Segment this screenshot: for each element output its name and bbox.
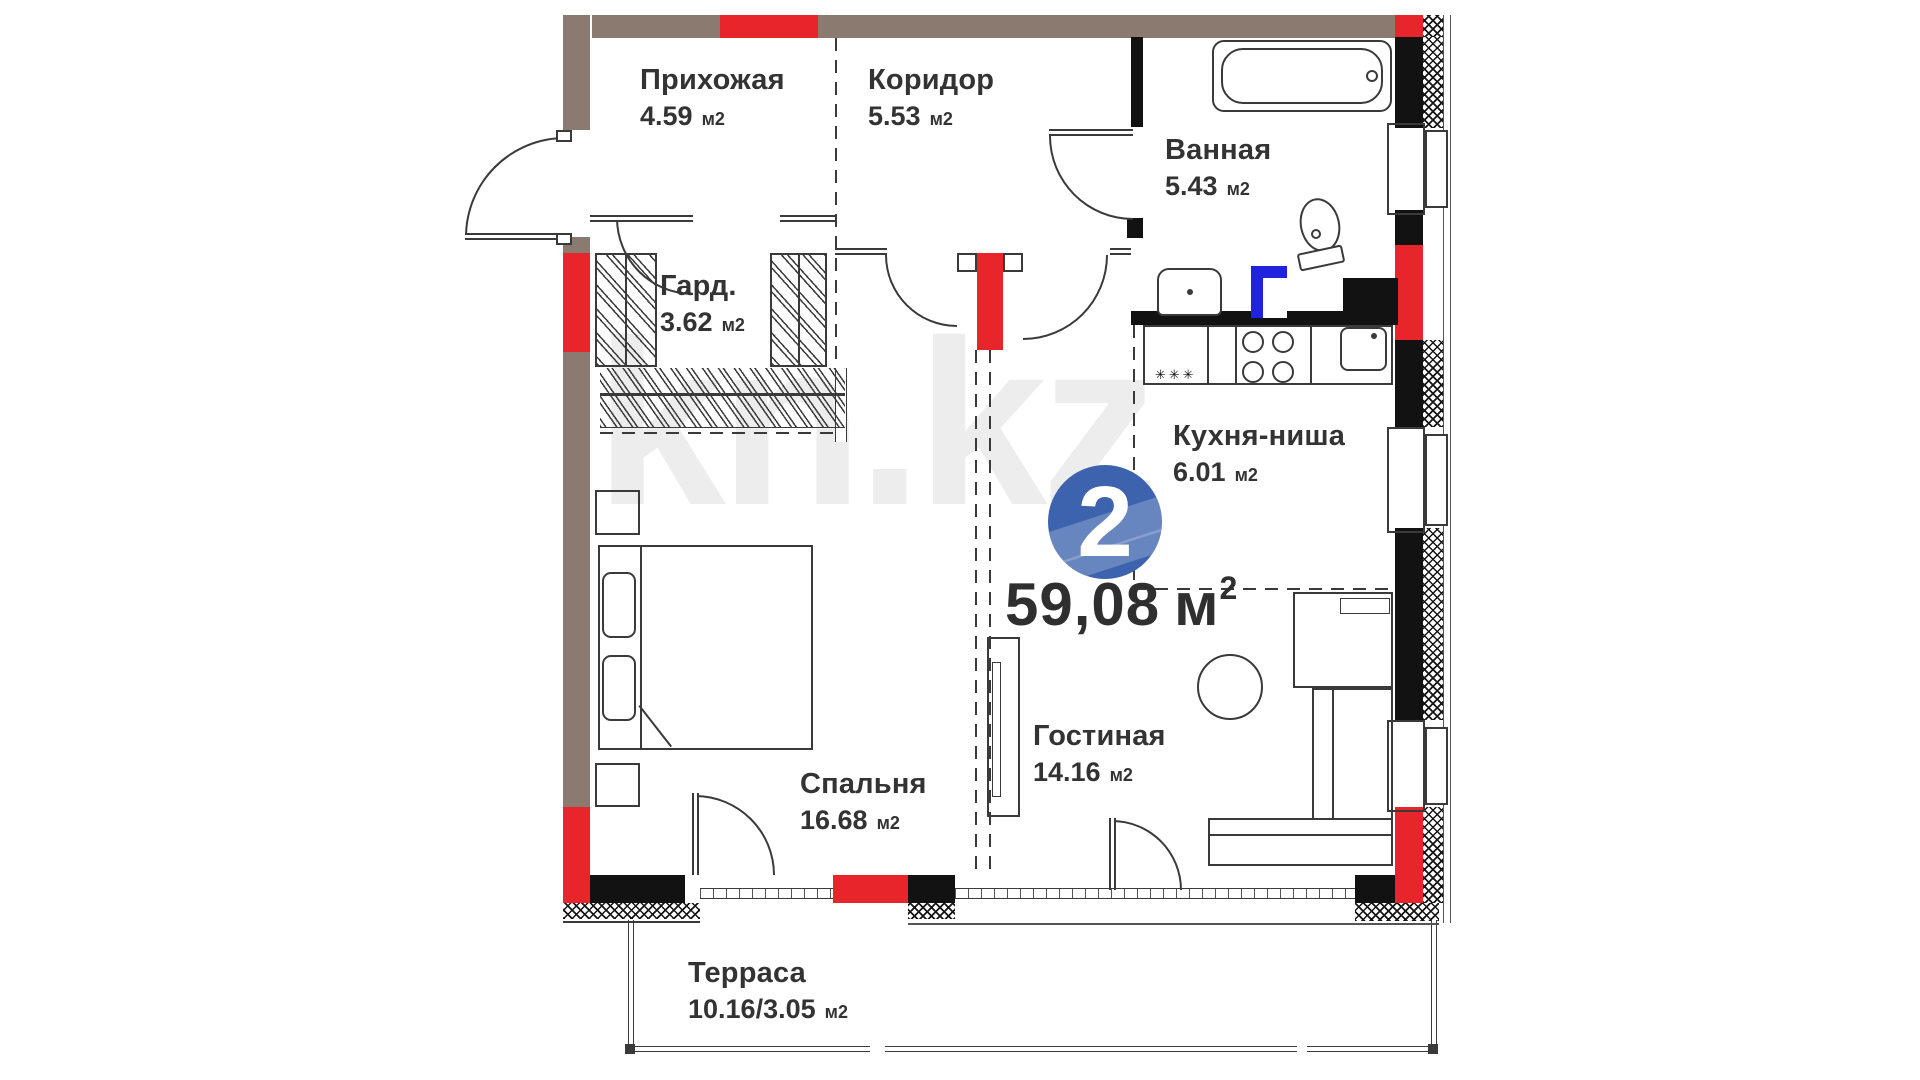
wall-bottom-black-1 — [590, 875, 685, 903]
wall-door-post-red — [977, 253, 1003, 350]
bathroom-door-arc — [1049, 136, 1133, 220]
door-hinge-block — [1003, 253, 1023, 272]
door-hinge-block — [556, 130, 572, 142]
counter-divider — [1207, 327, 1209, 383]
floor-plan-page: { "colors": { "wall_brown": "#8b7a70", "… — [0, 0, 1920, 1080]
wall-hallway-south-2 — [780, 215, 835, 222]
terrace-post — [1428, 1044, 1438, 1054]
toilet-dot — [1311, 229, 1321, 239]
terrace-door-living-leaf — [1109, 818, 1116, 890]
pillow — [602, 572, 636, 638]
terrace-door-bedroom-arc — [695, 795, 775, 875]
terrace-edge-gap — [1297, 1044, 1307, 1054]
shelf-divider — [625, 255, 627, 365]
wardrobe-shelf-right — [770, 253, 827, 367]
wall-top — [592, 15, 1395, 38]
terrace-door-living-arc — [1112, 820, 1182, 890]
kitchen-sink — [1340, 327, 1387, 371]
room-label-kitchen: Кухня-ниша 6.01м2 — [1173, 421, 1345, 487]
wall-left-red — [563, 253, 590, 352]
total-area: 59,08м2 — [1005, 570, 1238, 639]
room-name: Ванная — [1165, 135, 1271, 166]
room-area: 6.01м2 — [1173, 458, 1345, 487]
area-unit: м2 — [702, 109, 725, 129]
stove-burner — [1272, 361, 1294, 383]
area-unit: м2 — [1110, 765, 1133, 785]
terrace-edge-gap — [870, 1044, 885, 1054]
wall-left-red-bottom — [563, 807, 590, 903]
bed-headboard-line — [640, 547, 642, 748]
terrace-top-line — [563, 921, 700, 923]
room-name: Спальня — [800, 769, 927, 800]
wall-right-black-4 — [1395, 528, 1423, 720]
wardrobe-shelf-left — [595, 253, 657, 367]
wardrobe-rail — [600, 368, 845, 428]
counter-divider — [1235, 327, 1237, 383]
room-label-hallway: Прихожая 4.59м2 — [640, 65, 785, 131]
wall-right-black-1 — [1395, 37, 1423, 128]
insulation-hatch — [908, 903, 955, 919]
wall-right-red-mid — [1395, 245, 1423, 340]
sofa-section-bottom — [1208, 818, 1393, 866]
wall-left-main — [563, 352, 590, 807]
blanket-fold — [638, 705, 672, 747]
area-unit: м2 — [825, 1002, 848, 1022]
bathtub-inner — [1221, 48, 1383, 104]
area-unit: м2 — [722, 315, 745, 335]
area-unit: м2 — [930, 109, 953, 129]
room-name: Прихожая — [640, 65, 785, 96]
window-band-living — [955, 888, 1355, 899]
wardrobe-door-leaf — [616, 215, 693, 222]
room-name: Коридор — [868, 65, 994, 96]
wall-right-red-bottom — [1395, 807, 1423, 903]
wall-bathroom-ledge — [1343, 278, 1398, 311]
terrace-door-bedroom-leaf — [692, 793, 699, 875]
counter-divider — [1310, 327, 1312, 383]
round-table — [1197, 654, 1263, 720]
sofa-back-line — [1332, 690, 1334, 818]
bathroom-door-leaf — [1049, 129, 1133, 136]
wall-corridor-south-1 — [835, 248, 887, 255]
area-unit: м2 — [1235, 465, 1258, 485]
wall-bottom-red — [833, 875, 908, 903]
door-hinge-block — [556, 233, 572, 245]
entrance-door-arc — [465, 137, 565, 237]
pillow — [602, 655, 636, 721]
area-unit: м2 — [1227, 179, 1250, 199]
sofa-section-top — [1293, 592, 1393, 688]
room-label-wardrobe: Гард. 3.62м2 — [660, 271, 745, 337]
rail-bar — [600, 393, 845, 396]
room-name: Терраса — [688, 958, 848, 989]
terrace-post — [625, 1044, 635, 1054]
stove-burner — [1242, 361, 1264, 383]
insulation-hatch — [1423, 528, 1443, 720]
room-label-bathroom: Ванная 5.43м2 — [1165, 135, 1271, 201]
room-name: Гард. — [660, 271, 745, 302]
area-value: 14.16 — [1033, 757, 1101, 787]
room-area: 5.53м2 — [868, 102, 994, 131]
room-area: 14.16м2 — [1033, 758, 1166, 787]
window-right-1 — [1387, 123, 1425, 215]
insulation-hatch — [1355, 903, 1439, 921]
zone-line-wardrobe-south — [600, 432, 846, 434]
wall-corridor-south-2 — [1110, 248, 1131, 255]
nightstand — [595, 490, 640, 535]
toilet-tank — [1297, 244, 1346, 271]
room-area: 4.59м2 — [640, 102, 785, 131]
tv-cabinet — [987, 637, 1020, 817]
insulation-hatch — [1423, 807, 1443, 903]
area-value: 5.53 — [868, 101, 921, 131]
sink-faucet-dot — [1187, 289, 1193, 295]
nightstand — [595, 763, 640, 807]
insulation-hatch — [563, 903, 700, 919]
window-right-2 — [1387, 427, 1425, 533]
insulation-hatch — [1423, 37, 1443, 128]
stove-burner — [1242, 331, 1264, 353]
room-label-corridor: Коридор 5.53м2 — [868, 65, 994, 131]
total-area-unit: м — [1174, 571, 1219, 638]
room-area: 10.16/3.05м2 — [688, 995, 848, 1024]
room-label-living: Гостиная 14.16м2 — [1033, 721, 1166, 787]
total-area-value: 59,08 — [1005, 571, 1160, 638]
terrace-edge-bottom — [628, 1046, 1437, 1052]
area-value: 5.43 — [1165, 171, 1218, 201]
window-band-bedroom — [700, 888, 833, 899]
sofa-section-mid — [1312, 688, 1393, 820]
tv-screen — [992, 662, 1001, 797]
room-name: Кухня-ниша — [1173, 421, 1345, 452]
bathtub — [1212, 40, 1392, 112]
terrace-edge-left — [628, 920, 634, 1052]
wall-top-red-segment — [720, 15, 818, 38]
room-label-bedroom: Спальня 16.68м2 — [800, 769, 927, 835]
window-right-3-sill — [1425, 727, 1448, 805]
room-area: 5.43м2 — [1165, 172, 1271, 201]
room-label-terrace: Терраса 10.16/3.05м2 — [688, 958, 848, 1024]
stove-burner — [1272, 331, 1294, 353]
insulation-hatch — [1423, 15, 1443, 37]
wall-bottom-black-2 — [908, 875, 955, 903]
area-value: 4.59 — [640, 101, 693, 131]
terrace-edge-right — [1431, 920, 1437, 1052]
area-value: 10.16/3.05 — [688, 994, 816, 1024]
area-value: 3.62 — [660, 307, 713, 337]
window-right-1-sill — [1425, 130, 1448, 208]
room-name: Гостиная — [1033, 721, 1166, 752]
window-right-2-sill — [1425, 434, 1448, 526]
room-area: 3.62м2 — [660, 308, 745, 337]
insulation-hatch — [1423, 340, 1443, 427]
wall-bathroom-west-stub — [1127, 218, 1143, 238]
room-count-badge: 2 — [1048, 465, 1162, 579]
shelf-divider — [798, 255, 800, 365]
zone-line-bedroom-living-a — [975, 350, 977, 875]
kitchen-sink-faucet — [1371, 333, 1377, 339]
bathtub-drain — [1366, 70, 1378, 82]
wall-right-red-top — [1395, 15, 1423, 37]
wall-right-black-2 — [1395, 210, 1423, 245]
total-area-sup: 2 — [1220, 570, 1239, 606]
wall-bottom-black-3 — [1355, 875, 1397, 903]
wall-right-black-3 — [1395, 340, 1423, 427]
entrance-door-leaf — [465, 233, 565, 240]
wall-left-upper — [563, 15, 590, 130]
cabinet-marks: ✳✳✳ — [1155, 367, 1197, 383]
area-value: 6.01 — [1173, 457, 1226, 487]
wall-bathroom-west — [1131, 37, 1143, 127]
area-unit: м2 — [877, 813, 900, 833]
water-riser-pipe — [1251, 266, 1287, 318]
door-hinge-block — [957, 253, 977, 272]
sofa-cushion — [1340, 598, 1390, 614]
sofa-seat-line — [1210, 834, 1391, 836]
terrace-top-line-2 — [908, 923, 1439, 925]
room-area: 16.68м2 — [800, 806, 927, 835]
badge-number: 2 — [1077, 472, 1133, 572]
area-value: 16.68 — [800, 805, 868, 835]
floor-plan: kn.kz — [455, 5, 1465, 1075]
